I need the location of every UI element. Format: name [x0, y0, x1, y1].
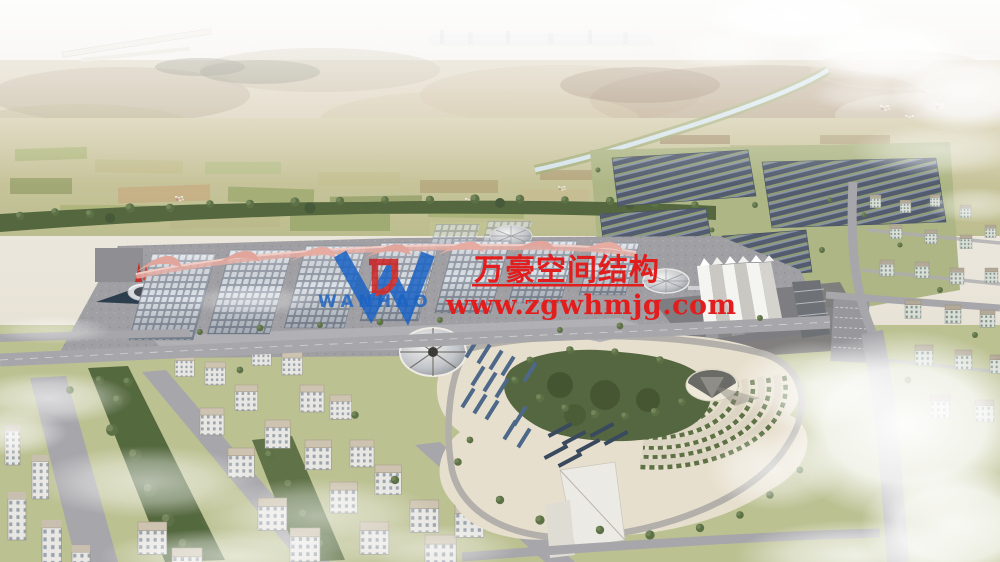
aerial-rendering: WANHAO 万豪空间结构 www.zgwhmjg.com [0, 0, 1000, 562]
watermark-website: www.zgwhmjg.com [445, 290, 737, 321]
watermark-underline [472, 284, 644, 287]
screenshot: WANHAO 万豪空间结构 www.zgwhmjg.com [0, 0, 1000, 562]
horizon-haze [0, 0, 1000, 185]
parking-lot [95, 248, 143, 282]
watermark-logo-text: WANHAO [318, 292, 432, 312]
watermark-company-name: 万豪空间结构 [474, 253, 660, 288]
